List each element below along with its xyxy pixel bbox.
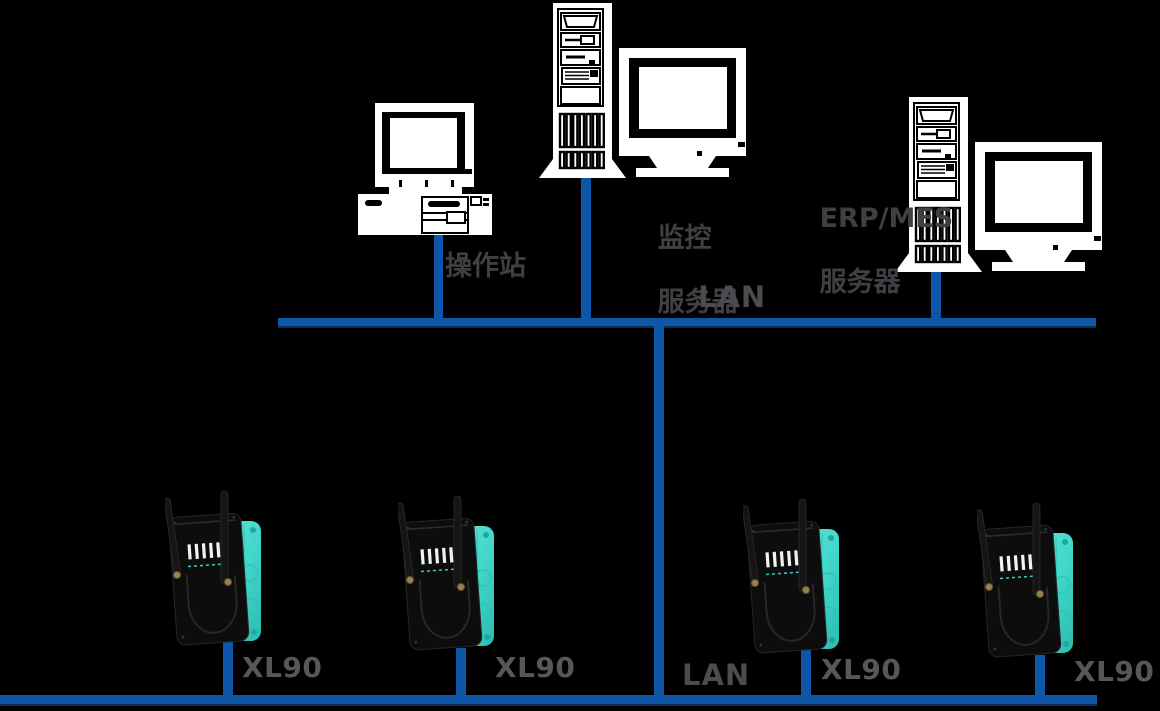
- monitoring-server-drop-line: [581, 177, 591, 318]
- network-diagram: 操作站 监控 服务器 ERP/MES 服务器 LAN LAN XL90 XL90…: [0, 0, 1160, 711]
- xl90-device-2: [398, 490, 498, 658]
- lan-bottom-label: LAN: [682, 658, 750, 692]
- erp-mes-server-label: ERP/MES 服务器: [782, 171, 953, 330]
- erp-mes-server-label-line1: ERP/MES: [820, 203, 954, 234]
- operator-station-label: 操作站: [445, 251, 526, 283]
- xl90-device-1: [165, 485, 265, 653]
- erp-mes-server-label-line2: 服务器: [820, 267, 901, 298]
- backbone-trunk-line: [654, 318, 664, 704]
- monitoring-server-graphic: [539, 2, 754, 184]
- operator-station-graphic: [352, 100, 497, 237]
- lan-top-label: LAN: [698, 280, 766, 314]
- bottom-lan-bus-line: [0, 695, 1097, 704]
- xl90-label-4: XL90: [1074, 655, 1154, 688]
- xl90-label-1: XL90: [242, 651, 322, 684]
- xl90-device-4: [977, 497, 1077, 665]
- monitoring-server-label: 监控 服务器: [620, 191, 739, 350]
- monitoring-server-label-line1: 监控: [658, 223, 712, 254]
- operator-station-drop-line: [434, 234, 443, 318]
- xl90-label-3: XL90: [821, 653, 901, 686]
- xl90-device-3: [743, 493, 843, 661]
- xl90-label-2: XL90: [495, 651, 575, 684]
